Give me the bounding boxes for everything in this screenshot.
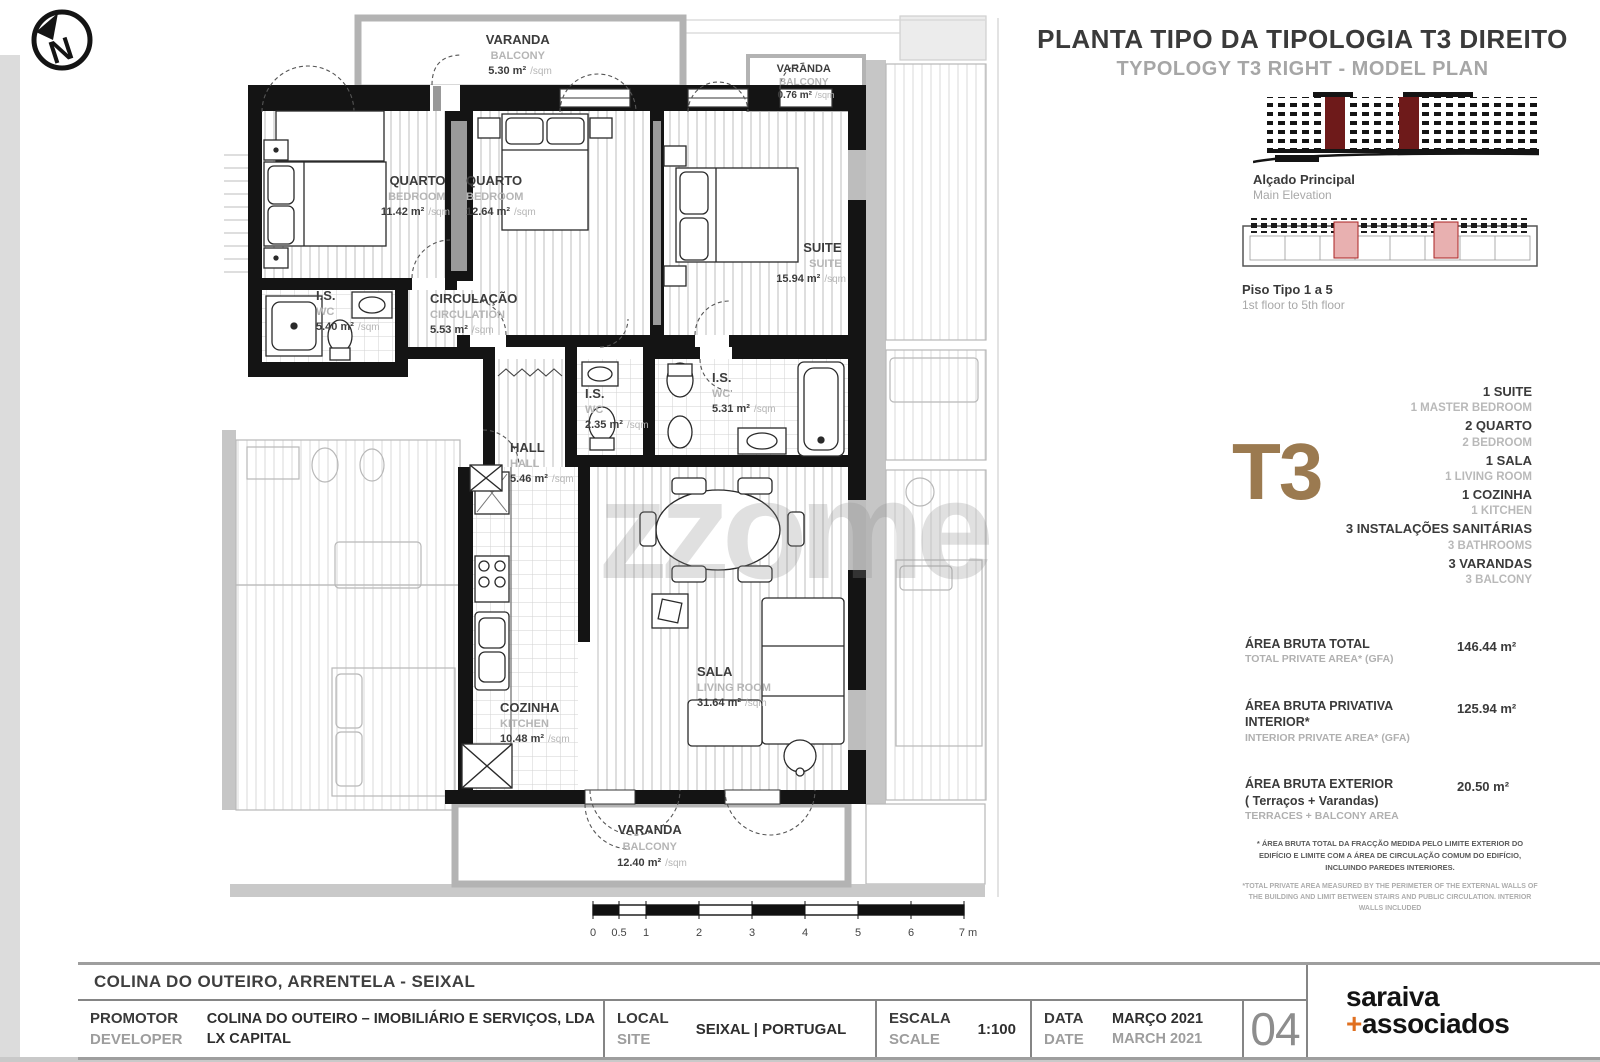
area-label-pt2: ( Terraços + Varandas): [1245, 793, 1455, 809]
elevation-highlight: [1325, 97, 1345, 149]
footnote-en: *TOTAL PRIVATE AREA MEASURED BY THE PERI…: [1240, 881, 1540, 915]
elevation-figure: [1253, 92, 1545, 173]
promoter-label-pt: PROMOTOR: [90, 1010, 195, 1027]
program-item-pt: 3 VARANDAS: [1321, 556, 1532, 572]
promoter-value-2: LX CAPITAL: [207, 1031, 595, 1047]
scale-tick: 3: [749, 927, 755, 939]
sheet-title: PLANTA TIPO DA TIPOLOGIA T3 DIREITO: [1030, 24, 1575, 55]
area-label-pt: ÁREA BRUTA PRIVATIVA INTERIOR*: [1245, 698, 1455, 731]
logo-line-1: saraiva: [1346, 984, 1600, 1011]
scale-label-pt: ESCALA: [889, 1010, 953, 1027]
floor-strip-caption: Piso Tipo 1 a 5 1st floor to 5th floor: [1242, 282, 1345, 313]
program-item-en: 3 BATHROOMS: [1321, 538, 1532, 554]
watermark: zzome: [598, 451, 990, 608]
areas-summary: ÁREA BRUTA TOTAL TOTAL PRIVATE AREA* (GF…: [1245, 636, 1535, 855]
typology-code: T3: [1232, 432, 1321, 590]
program-item-pt: 2 QUARTO: [1321, 418, 1532, 434]
elevation-highlight: [1399, 97, 1419, 149]
label-varanda-small: VARANDA BALCONY 0.76 m²/sqm: [777, 59, 836, 101]
label-varanda-top: VARANDA BALCONY 5.30 m²/sqm: [486, 31, 555, 77]
elevation-caption-pt: Alçado Principal: [1253, 172, 1355, 188]
scale-tick: 0.5: [611, 927, 626, 939]
sheet-subtitle: TYPOLOGY T3 RIGHT - MODEL PLAN: [1030, 58, 1575, 81]
date-value-en: MARCH 2021: [1112, 1031, 1234, 1047]
elevation-caption-en: Main Elevation: [1253, 188, 1355, 203]
scale-tick: 7 m: [959, 927, 977, 939]
strip-highlight-unit: [1334, 222, 1358, 258]
strip-caption-pt: Piso Tipo 1 a 5: [1242, 282, 1345, 298]
program-item-en: 1 KITCHEN: [1321, 503, 1532, 519]
date-value-pt: MARÇO 2021: [1112, 1011, 1234, 1027]
site-value: SEIXAL | PORTUGAL: [675, 1021, 867, 1038]
site-cell: LOCAL SITE SEIXAL | PORTUGAL: [603, 1001, 875, 1057]
strip-highlight-unit: [1434, 222, 1458, 258]
program-item-en: 1 LIVING ROOM: [1321, 469, 1532, 485]
program-item-pt: 1 COZINHA: [1321, 487, 1532, 503]
date-cell: DATA DATE MARÇO 2021 MARCH 2021: [1030, 1001, 1242, 1057]
program-item-pt: 1 SUITE: [1321, 384, 1532, 400]
scale-tick: 4: [802, 927, 808, 939]
footnotes: * ÁREA BRUTA TOTAL DA FRACÇÃO MEDIDA PEL…: [1240, 838, 1540, 915]
scale-label-en: SCALE: [889, 1031, 953, 1048]
label-varanda-bottom: VARANDA BALCONY 12.40 m²/sqm: [617, 821, 687, 869]
north-compass-icon: N: [34, 12, 90, 71]
logo-plus-sign: +: [1346, 1008, 1362, 1039]
area-label-pt: ÁREA BRUTA EXTERIOR: [1245, 776, 1455, 792]
label-quarto-1: QUARTO BEDROOM 11.42 m²/sqm: [381, 172, 450, 218]
area-label-en: TOTAL PRIVATE AREA* (GFA): [1245, 652, 1455, 668]
elevation-caption: Alçado Principal Main Elevation: [1253, 172, 1355, 203]
program-item-en: 1 MASTER BEDROOM: [1321, 400, 1532, 416]
floorplan-sheet: N: [0, 0, 1600, 1062]
date-label-pt: DATA: [1044, 1010, 1100, 1027]
area-exterior: ÁREA BRUTA EXTERIOR ( Terraços + Varanda…: [1245, 776, 1535, 824]
scale-tick: 6: [908, 927, 914, 939]
scale-tick: 5: [855, 927, 861, 939]
project-name: COLINA DO OUTEIRO, ARRENTELA - SEIXAL: [78, 965, 1306, 1001]
area-value: 146.44 m²: [1457, 639, 1535, 654]
architect-logo: saraiva +associados: [1306, 965, 1600, 1057]
program-item-pt: 1 SALA: [1321, 453, 1532, 469]
logo-line-2: +associados: [1346, 1011, 1600, 1038]
area-interior: ÁREA BRUTA PRIVATIVA INTERIOR* INTERIOR …: [1245, 698, 1535, 746]
program-item-en: 2 BEDROOM: [1321, 435, 1532, 451]
sheet-number: 04: [1242, 1001, 1306, 1057]
title-block: COLINA DO OUTEIRO, ARRENTELA - SEIXAL PR…: [78, 962, 1600, 1060]
area-label-pt: ÁREA BRUTA TOTAL: [1245, 636, 1455, 652]
scale-tick: 2: [696, 927, 702, 939]
site-label-pt: LOCAL: [617, 1010, 675, 1027]
area-label-en: TERRACES + BALCONY AREA: [1245, 809, 1455, 825]
date-label-en: DATE: [1044, 1031, 1100, 1048]
scale-tick: 0: [590, 927, 596, 939]
area-label-en: INTERIOR PRIVATE AREA* (GFA): [1245, 731, 1455, 747]
promoter-value-1: COLINA DO OUTEIRO – IMOBILIÁRIO E SERVIÇ…: [207, 1011, 595, 1027]
area-value: 20.50 m²: [1457, 779, 1535, 794]
label-quarto-2: QUARTO BEDROOM 12.64 m²/sqm: [466, 172, 536, 218]
scale-bar: 0 0.5 1 2 3 4 5 6 7 m: [590, 901, 977, 939]
floor-strip-figure: [1240, 214, 1540, 281]
promoter-label-en: DEVELOPER: [90, 1031, 195, 1048]
strip-caption-en: 1st floor to 5th floor: [1242, 298, 1345, 313]
typology-program: T3 1 SUITE 1 MASTER BEDROOM 2 QUARTO 2 B…: [1232, 380, 1532, 590]
promoter-cell: PROMOTOR DEVELOPER COLINA DO OUTEIRO – I…: [78, 1001, 603, 1057]
scale-cell: ESCALA SCALE 1:100: [875, 1001, 1030, 1057]
site-label-en: SITE: [617, 1031, 675, 1048]
footnote-pt: * ÁREA BRUTA TOTAL DA FRACÇÃO MEDIDA PEL…: [1240, 838, 1540, 874]
program-item-pt: 3 INSTALAÇÕES SANITÁRIAS: [1321, 521, 1532, 537]
area-value: 125.94 m²: [1457, 701, 1535, 716]
program-item-en: 3 BALCONY: [1321, 572, 1532, 588]
area-total: ÁREA BRUTA TOTAL TOTAL PRIVATE AREA* (GF…: [1245, 636, 1535, 668]
scale-value: 1:100: [953, 1021, 1022, 1038]
scale-tick: 1: [643, 927, 649, 939]
